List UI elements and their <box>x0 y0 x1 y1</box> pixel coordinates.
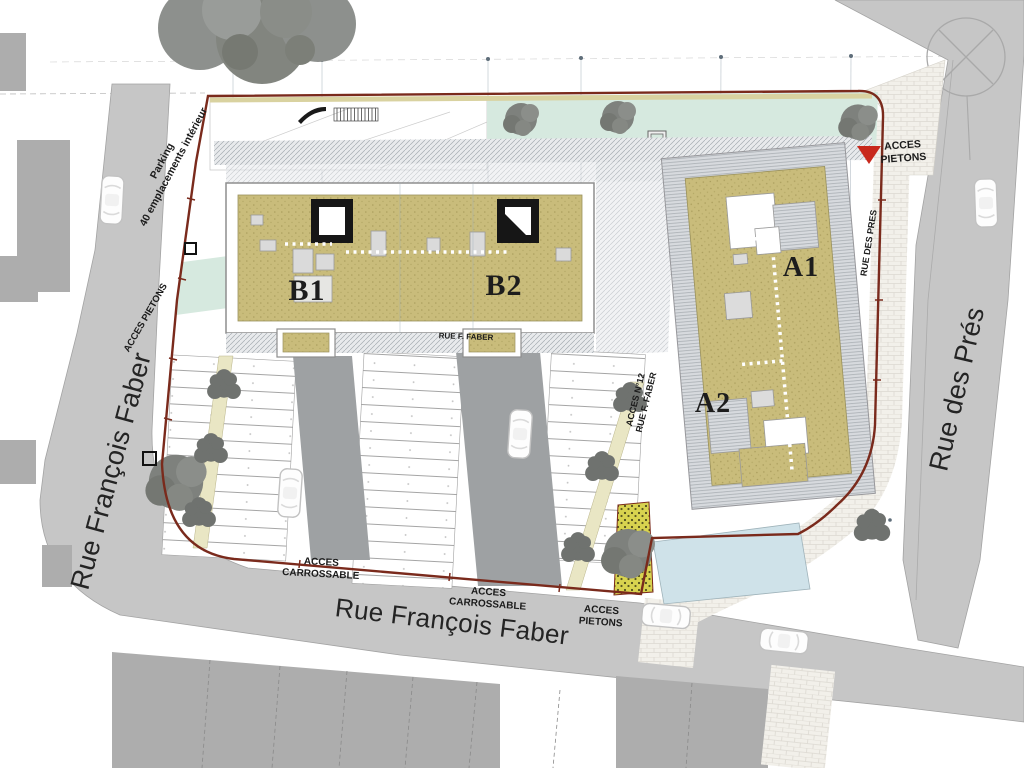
car-icon <box>974 179 998 228</box>
building-b <box>226 183 594 357</box>
car-icon <box>641 603 691 629</box>
car-icon <box>100 175 124 224</box>
car-icon <box>507 409 532 458</box>
lawn-strip-left <box>176 256 228 315</box>
driveway-east <box>456 352 562 586</box>
building-label-b2: B2 <box>485 269 522 303</box>
car-icon <box>759 628 809 655</box>
street-label-rue-f-faber-small: RUE F. FABER <box>439 331 494 342</box>
building-label-a2: A2 <box>695 388 731 420</box>
building-label-b1: B1 <box>288 274 325 308</box>
car-icon <box>277 468 302 517</box>
site-plan: Parking 40 emplacements intérieur ACCES … <box>0 0 1024 768</box>
acces-pietons-northeast: ACCES PIETONS <box>879 138 927 166</box>
driveway-west <box>293 356 370 560</box>
building-label-a1: A1 <box>783 252 819 284</box>
acces-pietons-south: ACCES PIETONS <box>578 604 623 631</box>
building-a <box>661 143 875 510</box>
site-plan-drawing <box>0 0 1024 768</box>
acces-carrossable-west: ACCES CARROSSABLE <box>282 555 360 583</box>
tree-canopy-icon <box>158 0 356 84</box>
ramp-hatch <box>334 108 378 121</box>
